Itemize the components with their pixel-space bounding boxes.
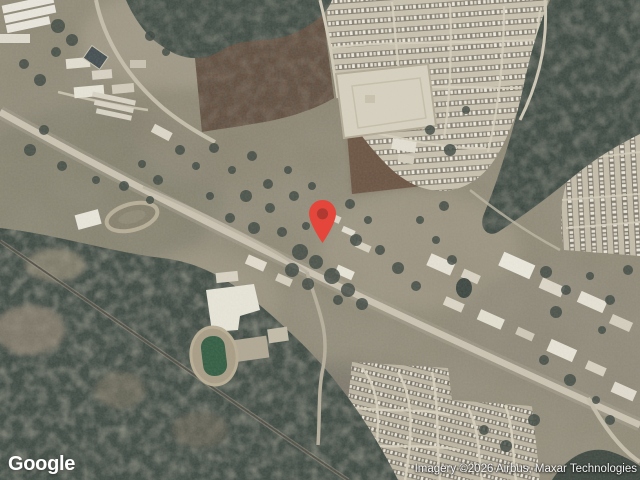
google-logo[interactable]: Google [8,453,75,476]
satellite-map-canvas[interactable]: Google Imagery ©2026 Airbus, Maxar Techn… [0,0,640,480]
location-pin-icon[interactable] [309,200,336,243]
pin-glyph [309,200,336,243]
attribution-text: Imagery ©2026 Airbus, Maxar Technologies [415,463,637,475]
pin-inner-dot [317,208,328,219]
pin-body [309,200,336,243]
